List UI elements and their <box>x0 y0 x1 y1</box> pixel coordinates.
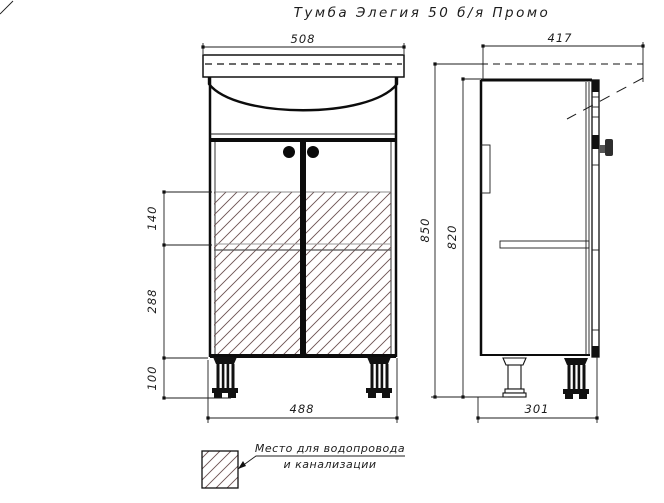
legend-caption-line1: Место для водопровода <box>255 442 405 455</box>
dim-label-417: 417 <box>548 31 573 45</box>
side-front-foot <box>503 358 526 397</box>
dim-label-301: 301 <box>525 402 550 416</box>
side-view: 417 850 820 301 <box>418 31 645 423</box>
dim-side-body-height: 820 <box>445 77 483 398</box>
cabinet-side <box>481 78 643 399</box>
dim-side-top-depth: 417 <box>481 31 644 82</box>
legend-hatch-swatch <box>202 451 238 488</box>
dim-label-850: 850 <box>418 218 432 243</box>
cabinet-front <box>210 77 396 398</box>
corner-mark <box>0 1 13 14</box>
hinge-plate <box>481 145 490 193</box>
side-back-foot <box>563 358 589 399</box>
dim-label-140: 140 <box>145 206 159 231</box>
knob-side <box>599 139 613 156</box>
dim-label-508: 508 <box>291 32 316 46</box>
front-right-foot <box>366 357 392 398</box>
technical-drawing-page: Тумба Элегия 50 б/я Промо <box>0 0 664 503</box>
dim-label-288: 288 <box>145 289 159 314</box>
left-door-knob <box>283 146 295 158</box>
dim-front-top-width: 508 <box>201 32 405 54</box>
door-side <box>592 80 599 357</box>
drawing-title: Тумба Элегия 50 б/я Промо <box>294 5 551 21</box>
dim-label-100: 100 <box>145 366 159 391</box>
legend: Место для водопровода и канализации <box>202 442 405 488</box>
vanity-cabinet-drawing: Тумба Элегия 50 б/я Промо <box>0 0 664 503</box>
sink-overhang-hidden-line <box>567 78 643 119</box>
dim-label-820: 820 <box>445 225 459 250</box>
sink-front <box>203 55 404 110</box>
front-view: 508 488 140 288 100 <box>145 32 406 423</box>
shelf-side <box>500 241 589 248</box>
right-door-knob <box>307 146 319 158</box>
dim-label-488: 488 <box>290 402 315 416</box>
legend-caption-line2: и канализации <box>283 458 376 471</box>
dim-side-total-height: 850 <box>418 62 437 398</box>
front-left-foot <box>212 357 238 398</box>
